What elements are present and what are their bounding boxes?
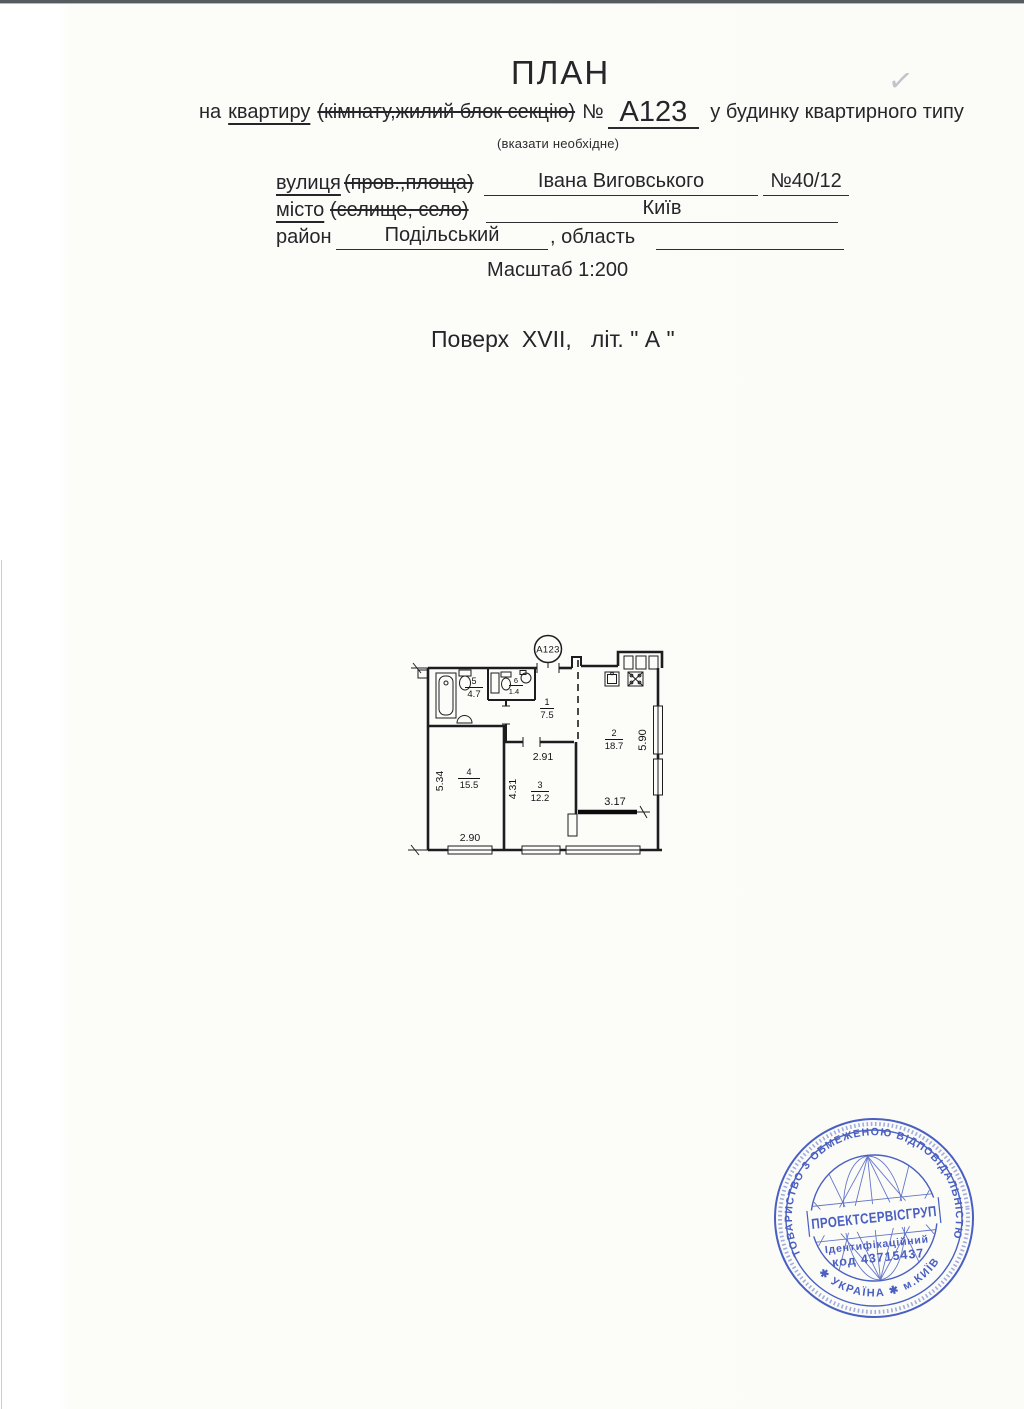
svg-text:18.7: 18.7 [605, 741, 624, 752]
dim-291: 2.91 [533, 751, 554, 763]
scale-line: Масштаб 1:200 [487, 259, 628, 282]
wc-sink-icon [520, 671, 531, 684]
svg-text:4: 4 [466, 767, 471, 777]
street-value: Івана Виговського [484, 170, 758, 196]
window-right-upper [654, 706, 663, 754]
svg-text:1: 1 [544, 697, 549, 707]
window-bottom-balcony [566, 846, 640, 854]
room-5-label: 5 4.7 [465, 676, 483, 700]
city-label: місто [276, 199, 324, 222]
scanner-edge-left [1, 560, 2, 1409]
subtitle-note: (вказати необхідне) [497, 136, 619, 151]
bathtub-icon [436, 673, 456, 718]
oblast-value-blank [656, 224, 844, 250]
house-number: №40/12 [763, 170, 849, 196]
apartment-tag-bubble: А123 [535, 636, 562, 669]
numero-sign: № [582, 101, 603, 123]
subtitle-prefix: на [199, 101, 221, 123]
floor-plan-drawing: А123 1 7.5 2 18.7 3 12.2 4 15.5 5 4.7 [400, 628, 680, 878]
kitchen-sink-icon [605, 672, 619, 686]
dim-590: 5.90 [637, 729, 649, 750]
scanner-edge-shadow [0, 3, 1024, 4]
stove-icon [628, 672, 643, 686]
district-value: Подільський [336, 224, 548, 250]
street-struck-options: (пров.,площа) [344, 172, 474, 195]
dim-317: 3.17 [604, 796, 625, 808]
oblast-label: , область [550, 226, 635, 249]
city-value: Київ [486, 197, 838, 223]
dim-534: 5.34 [434, 771, 446, 792]
room-4-label: 4 15.5 [458, 767, 480, 791]
floor-line: Поверх XVII, літ. " А " [431, 326, 675, 353]
svg-text:3: 3 [537, 780, 542, 790]
kitchen-bay-windows [624, 656, 658, 669]
window-bottom-room3 [522, 846, 560, 854]
svg-text:6: 6 [514, 676, 518, 685]
washbasin-icon [457, 716, 472, 724]
company-stamp: ПРОЕКТСЕРВІСГРУП Ідентифікаційний код 43… [768, 1112, 980, 1324]
subtitle-struck-options: (кімнату,жилий блок секцію) [317, 101, 575, 123]
svg-text:12.2: 12.2 [531, 793, 550, 804]
svg-text:4.7: 4.7 [467, 689, 480, 700]
apartment-number: А123 [608, 97, 700, 129]
pillar [568, 814, 577, 836]
subtitle-line: наквартиру(кімнату,жилий блок секцію)№А1… [199, 97, 964, 129]
window-bottom-room4 [448, 846, 492, 854]
wc-cabinet-icon [491, 673, 499, 693]
dim-290: 2.90 [460, 832, 481, 844]
district-label: район [276, 226, 332, 249]
city-struck-options: (селище, село) [330, 199, 469, 222]
room-2-label: 2 18.7 [605, 728, 624, 752]
room-1-label: 1 7.5 [540, 697, 554, 721]
street-label: вулиця [276, 172, 341, 195]
page-title: ПЛАН [511, 54, 610, 92]
apartment-tag-text: А123 [536, 645, 559, 656]
svg-text:15.5: 15.5 [460, 780, 479, 791]
checkmark-pencil: ✓ [886, 62, 916, 100]
scanned-plan-document: ПЛАН наквартиру(кімнату,жилий блок секці… [0, 0, 1024, 1409]
dim-431: 4.31 [507, 779, 519, 800]
subtitle-selected-option: квартиру [228, 101, 310, 123]
window-right-lower [654, 759, 663, 795]
svg-text:2: 2 [611, 728, 616, 738]
svg-text:7.5: 7.5 [540, 710, 553, 721]
subtitle-suffix: у будинку квартирного типу [710, 101, 964, 123]
svg-text:1.4: 1.4 [509, 687, 519, 696]
svg-text:5: 5 [471, 676, 476, 686]
room-3-label: 3 12.2 [531, 780, 550, 804]
